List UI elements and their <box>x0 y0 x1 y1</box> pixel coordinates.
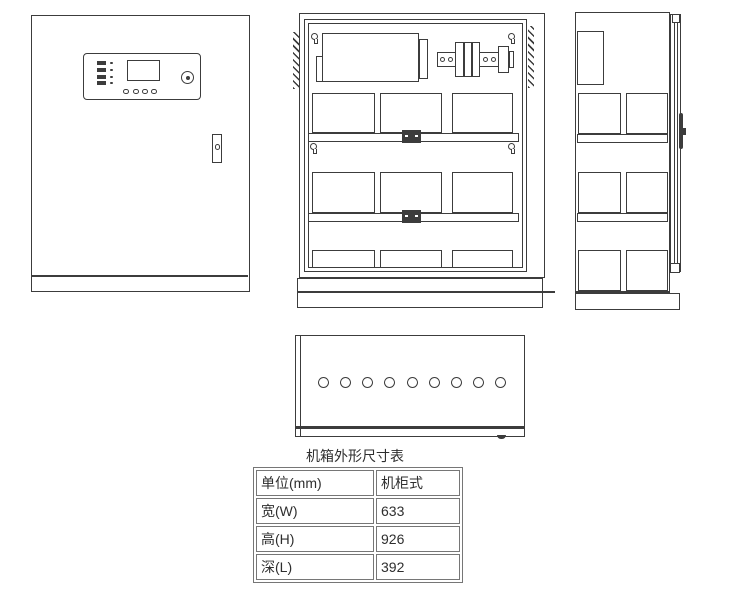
module-slot <box>312 172 375 213</box>
led-indicator-icon <box>110 62 113 65</box>
dim-label-depth: 深(L) <box>256 554 374 580</box>
cable-hole-icon <box>429 377 440 388</box>
dim-value-width: 633 <box>376 498 460 524</box>
panel-button[interactable] <box>123 89 129 95</box>
led-label-bar <box>97 75 106 79</box>
table-row: 单位(mm) 机柜式 <box>256 470 460 496</box>
dimensions-table-title: 机箱外形尺寸表 <box>253 446 457 466</box>
led-indicator-icon <box>110 82 113 85</box>
mounting-keyhole-icon <box>508 143 515 155</box>
module-slot <box>312 250 375 268</box>
led-label-bar <box>97 81 106 85</box>
base-mid-line <box>297 291 555 293</box>
cabinet-base <box>575 293 680 310</box>
door-bottom-bracket <box>670 263 680 273</box>
mounting-keyhole-icon <box>508 33 515 45</box>
rail-clip <box>402 130 421 143</box>
side-view <box>575 12 687 310</box>
module-slot <box>452 172 513 213</box>
door-edge-line <box>674 20 675 266</box>
door-top-bracket <box>672 14 680 23</box>
terminal-screw-icon <box>448 57 453 62</box>
cable-hole-icon <box>318 377 329 388</box>
module-slot <box>626 250 668 291</box>
dimensions-table: 单位(mm) 机柜式 宽(W) 633 高(H) 926 深(L) 392 <box>253 467 463 583</box>
dim-label-unit: 单位(mm) <box>256 470 374 496</box>
breaker-segment-line <box>463 42 465 77</box>
din-rail <box>577 213 668 222</box>
breaker-end-block <box>498 46 509 73</box>
cable-hole-icon <box>495 377 506 388</box>
dim-value-type: 机柜式 <box>376 470 460 496</box>
led-indicator-icon <box>110 69 113 72</box>
front-view <box>31 15 250 292</box>
bottom-edge-line <box>300 336 301 436</box>
bottom-fold-line <box>296 426 524 429</box>
round-button-center-dot <box>186 76 190 80</box>
module-slot <box>626 172 668 213</box>
table-row: 宽(W) 633 <box>256 498 460 524</box>
battery-box <box>322 33 419 82</box>
door-edge-line <box>677 20 678 266</box>
panel-button[interactable] <box>142 89 148 95</box>
module-slot <box>626 93 668 134</box>
control-panel <box>83 53 201 100</box>
panel-button[interactable] <box>151 89 157 95</box>
module-slot <box>578 93 621 134</box>
cable-hole-icon <box>407 377 418 388</box>
bottom-screw-nub <box>497 435 506 439</box>
din-rail <box>577 134 668 143</box>
bottom-view <box>295 335 527 441</box>
module-slot <box>452 250 513 268</box>
side-lock-nub <box>683 128 686 135</box>
dim-value-height: 926 <box>376 526 460 552</box>
dim-value-depth: 392 <box>376 554 460 580</box>
panel-button[interactable] <box>133 89 139 95</box>
cable-hole-icon <box>362 377 373 388</box>
terminal-screw-icon <box>440 57 445 62</box>
side-component <box>577 31 604 85</box>
module-slot <box>452 93 513 133</box>
breaker-end-cap <box>509 51 514 68</box>
module-slot <box>312 93 375 133</box>
lock-keyhole-icon <box>215 144 221 150</box>
module-slot <box>380 250 442 268</box>
internal-view <box>292 10 556 310</box>
cable-hole-icon <box>340 377 351 388</box>
vent-hatch-right <box>528 26 534 88</box>
module-slot <box>380 93 442 133</box>
dim-label-height: 高(H) <box>256 526 374 552</box>
cabinet-base <box>297 278 543 308</box>
battery-tab-right <box>419 39 428 79</box>
mounting-keyhole-icon <box>310 143 317 155</box>
door-lock-handle[interactable] <box>212 134 222 163</box>
mounting-keyhole-icon <box>311 33 318 45</box>
cable-hole-icon <box>384 377 395 388</box>
display-screen <box>127 60 160 81</box>
led-label-bar <box>97 61 106 65</box>
led-label-bar <box>97 68 106 72</box>
terminal-screw-icon <box>491 57 496 62</box>
circuit-breaker <box>455 42 480 77</box>
base-divider-line <box>32 275 248 277</box>
cable-hole-icon <box>473 377 484 388</box>
terminal-screw-icon <box>483 57 488 62</box>
led-indicator-icon <box>110 76 113 79</box>
dim-label-width: 宽(W) <box>256 498 374 524</box>
cabinet-technical-drawing: 机箱外形尺寸表 单位(mm) 机柜式 宽(W) 633 高(H) 926 深(L… <box>0 0 731 605</box>
module-slot <box>578 250 621 291</box>
table-row: 高(H) 926 <box>256 526 460 552</box>
table-row: 深(L) 392 <box>256 554 460 580</box>
cable-hole-icon <box>451 377 462 388</box>
module-slot <box>578 172 621 213</box>
rail-clip <box>402 210 421 223</box>
module-slot <box>380 172 442 213</box>
breaker-segment-line <box>471 42 473 77</box>
